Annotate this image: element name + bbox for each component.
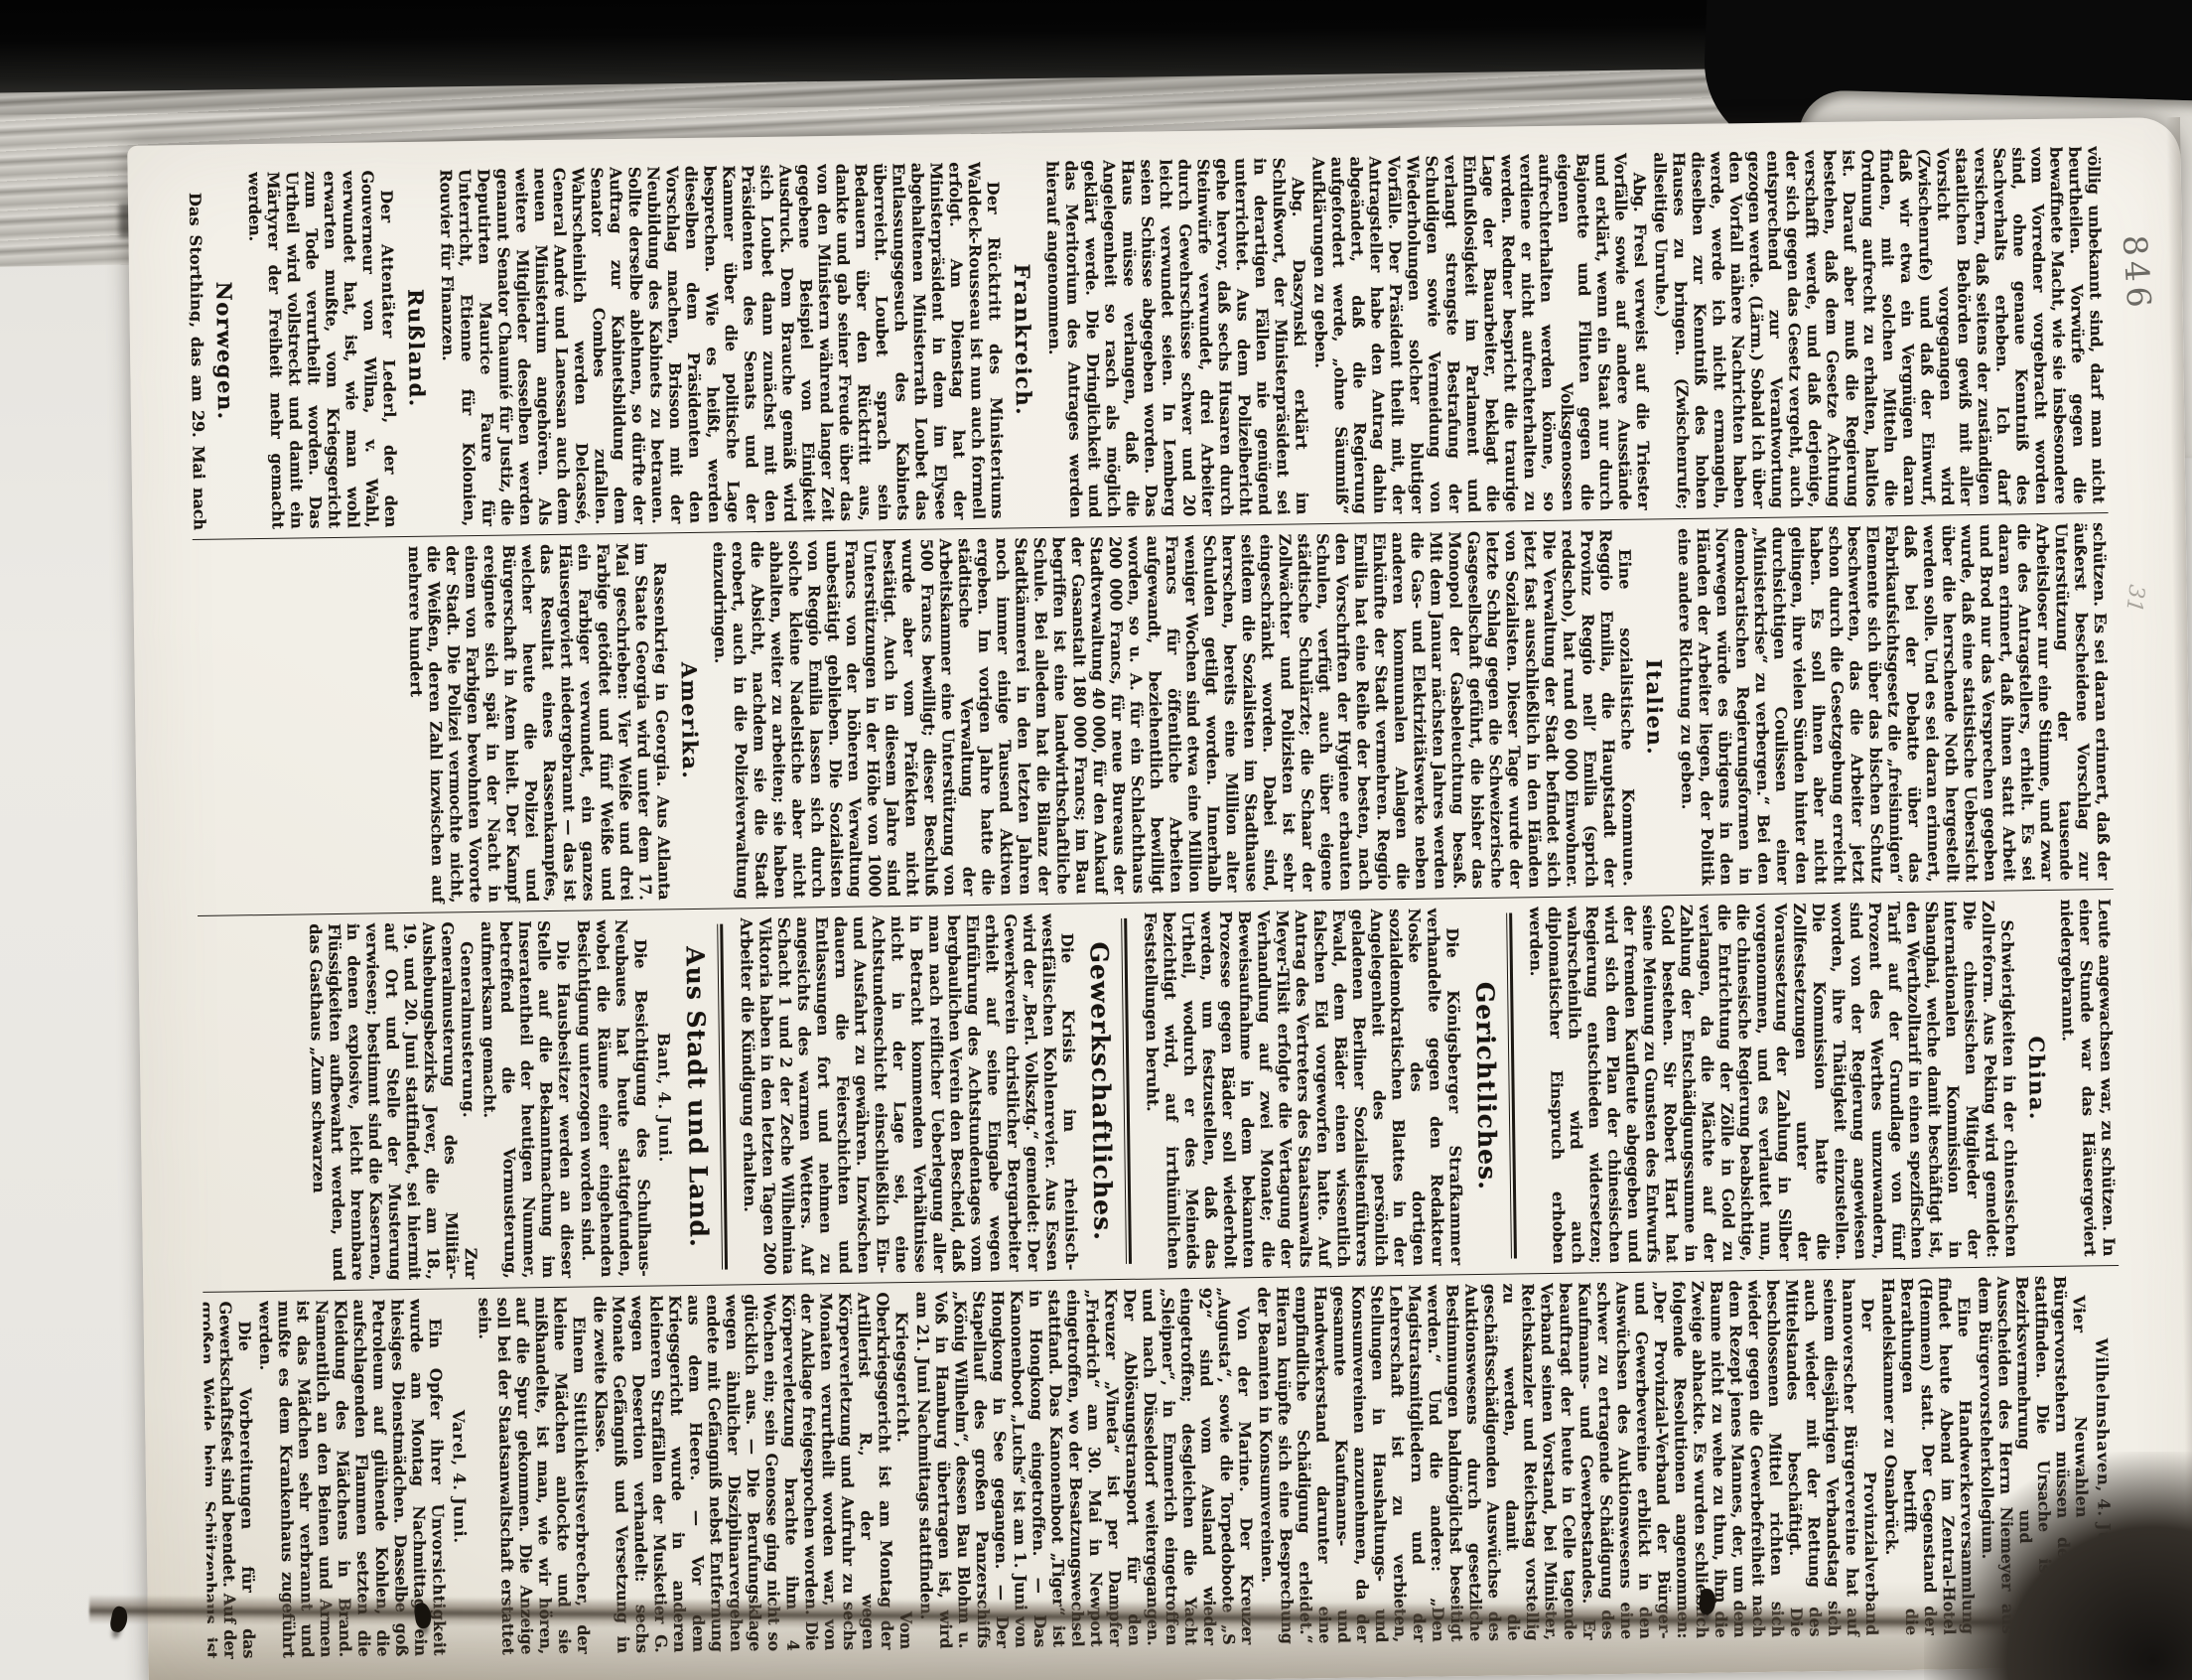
- section-heading-rußland: Rußland.: [402, 170, 432, 527]
- section-heading-amerika: Amerika.: [675, 542, 705, 900]
- section-heading-china: China.: [2022, 900, 2052, 1257]
- article-paragraph: Generalmusterung. Zur Generalmusterung d…: [306, 921, 480, 1281]
- dateline-bant-4-juni: Bant, 4. Juni.: [652, 918, 676, 1276]
- paragraph-lead: Die Königsberger Strafkammer: [1442, 927, 1466, 1265]
- newspaper-column: schützen. Es sei daran erinnert, daß der…: [193, 522, 2114, 916]
- article-paragraph: Eine sozialistische Kommune. Reggio Emil…: [710, 529, 1639, 900]
- scanned-book-page: 846 31 völlig unbekannt sind, darf man n…: [0, 0, 2192, 1680]
- column-container: völlig unbekannt sind, darf man nicht be…: [188, 146, 2124, 1668]
- section-heading-norwegen: Norwegen.: [210, 172, 240, 529]
- article-paragraph: Das Storthing, das am 29. Mai nach achtm…: [188, 173, 209, 535]
- article-paragraph: Die Krisis im rheinisch-westfälischen Ko…: [737, 913, 1081, 1276]
- paragraph-lead: Die Hausbesitzer: [553, 940, 574, 1115]
- article-paragraph: Leute angewachsen war, zu schützen. In e…: [2057, 899, 2119, 1257]
- paragraph-lead: Eine sozialistische Kommune.: [1615, 549, 1639, 887]
- article-paragraph: schützen. Es sei daran erinnert, daß der…: [1675, 522, 2114, 886]
- article-paragraph: Abg. Daszynski erklärt im Schlußwort, de…: [1043, 157, 1312, 518]
- article-paragraph: Die Königsberger Strafkammer verhandelte…: [1141, 908, 1466, 1269]
- binding-shadow: [1924, 1452, 2192, 1680]
- paragraph-lead: Schwierigkeiten in der chinesischen Zoll…: [1979, 901, 2021, 1258]
- page-number: 846: [2116, 233, 2159, 313]
- paragraph-lead: Die Krisis im rheinisch-westfälischen Ko…: [1038, 913, 1081, 1271]
- section-heading-aus-stadt-und-land: Aus Stadt und Land.: [680, 918, 728, 1277]
- newspaper-column: völlig unbekannt sind, darf man nicht be…: [188, 146, 2109, 540]
- article-paragraph: Der Rücktritt des Ministeriums Waldeck-R…: [437, 162, 1008, 527]
- article-paragraph: Die Hausbesitzer werden an dieser Stelle…: [478, 920, 577, 1279]
- section-heading-gewerkschaftliches: Gewerkschaftliches.: [1084, 912, 1132, 1271]
- section-heading-text: Aus Stadt und Land.: [680, 918, 714, 1276]
- handwritten-margin-note: 31: [2121, 583, 2148, 614]
- section-heading-text: Gewerkschaftliches.: [1084, 912, 1118, 1270]
- section-heading-gerichtliches: Gerichtliches.: [1469, 907, 1517, 1265]
- paragraph-lead: Das Storthing,: [188, 193, 206, 337]
- paragraph-lead: Kriegsgericht.: [892, 1312, 915, 1611]
- paragraph-lead: Generalmusterung.: [457, 941, 479, 1248]
- section-heading-frankreich: Frankreich.: [1009, 161, 1038, 518]
- paragraph-lead: Der Rücktritt des Ministeriums Waldeck-R…: [965, 162, 1008, 519]
- paragraph-lead: Von der Marine.: [1234, 1307, 1256, 1517]
- article-paragraph: Rassenkrieg in Georgia. Aus Atlanta im S…: [405, 542, 674, 904]
- article-paragraph: Schwierigkeiten in der chinesischen Zoll…: [1526, 900, 2021, 1264]
- article-paragraph: völlig unbekannt sind, darf man nicht be…: [1650, 146, 2108, 509]
- newspaper-page-content: 846 31 völlig unbekannt sind, darf man n…: [127, 117, 2192, 1680]
- paragraph-lead: Der Attentäter Lederl,: [377, 190, 400, 445]
- article-paragraph: Der Attentäter Lederl, der den Gouverneu…: [245, 170, 401, 529]
- newspaper-column: Leute angewachsen war, zu schützen. In e…: [198, 899, 2119, 1293]
- article-paragraph: Die Besichtigung des Schulhaus-Neubaues …: [574, 919, 654, 1278]
- section-heading-text: Gerichtliches.: [1469, 908, 1503, 1265]
- section-heading-italien: Italien.: [1640, 528, 1670, 886]
- paragraph-lead: Die Vorbereitungen: [235, 1321, 257, 1566]
- paragraph-lead: Einem Sittlichkeitsverbrecher,: [570, 1317, 593, 1625]
- newspaper-page: 846 31 völlig unbekannt sind, darf man n…: [127, 117, 2192, 1680]
- article-paragraph: Abg. Fresl verweist auf die Triester Vor…: [1308, 152, 1653, 514]
- paragraph-lead: Rassenkrieg in Georgia.: [650, 562, 672, 795]
